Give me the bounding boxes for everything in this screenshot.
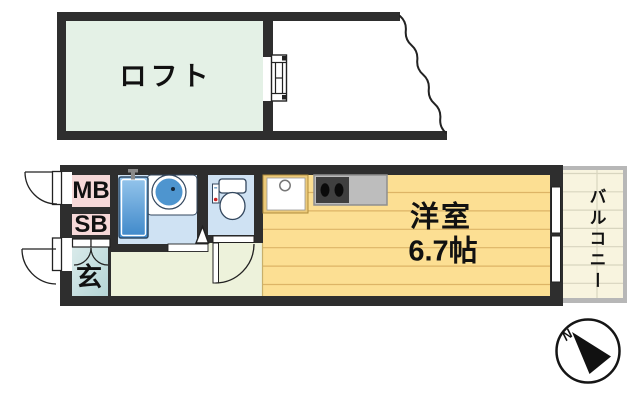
room-name-label: 洋室 [410,204,472,233]
vanity-sink-icon [147,175,197,215]
room-size-label: 6.7帖 [408,238,477,267]
kitchen-sink-icon [263,175,308,213]
entrance-label: 玄 [76,264,102,290]
loft-label: ロフト [120,64,213,91]
balcony-label: バルコニー [588,188,605,293]
meter-box-label: MB [72,179,109,203]
meter-box-door [25,172,72,205]
floor-plan: ロフト MB SB 玄 洋室 6.7帖 バルコニー N [0,0,640,400]
stove-icon [314,175,387,205]
break-line [400,16,446,133]
shoe-box-label: SB [74,213,107,237]
washlet-panel-icon [213,184,220,203]
loft-ladder-icon [263,55,287,101]
bathtub-icon [119,169,148,238]
